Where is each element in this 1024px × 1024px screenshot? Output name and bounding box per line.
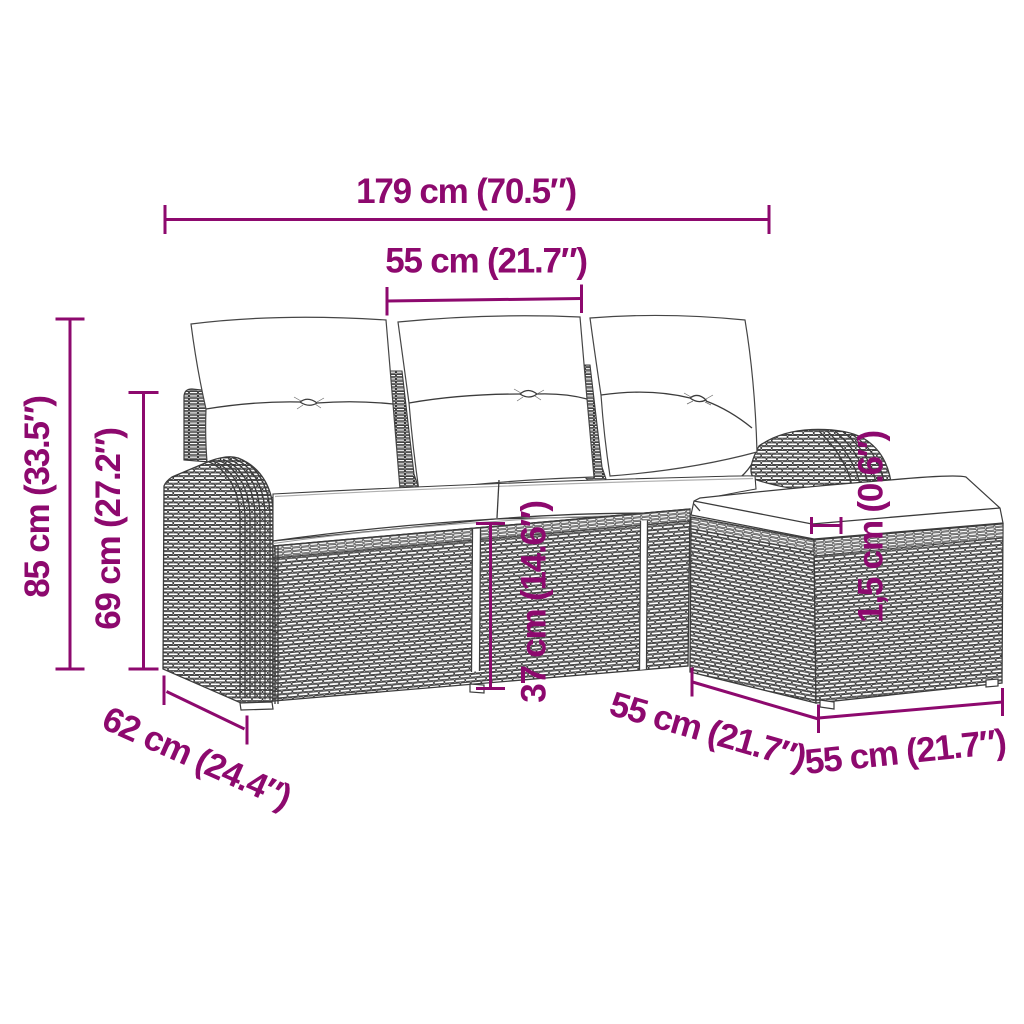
svg-text:85 cm (33.5″): 85 cm (33.5″): [18, 396, 57, 598]
svg-text:37 cm (14.6″): 37 cm (14.6″): [515, 501, 554, 703]
svg-text:1,5 cm (0.6″): 1,5 cm (0.6″): [852, 431, 891, 623]
svg-text:179 cm (70.5″): 179 cm (70.5″): [356, 172, 576, 211]
svg-text:55 cm (21.7″): 55 cm (21.7″): [385, 242, 587, 281]
svg-text:69 cm (27.2″): 69 cm (27.2″): [89, 428, 128, 630]
